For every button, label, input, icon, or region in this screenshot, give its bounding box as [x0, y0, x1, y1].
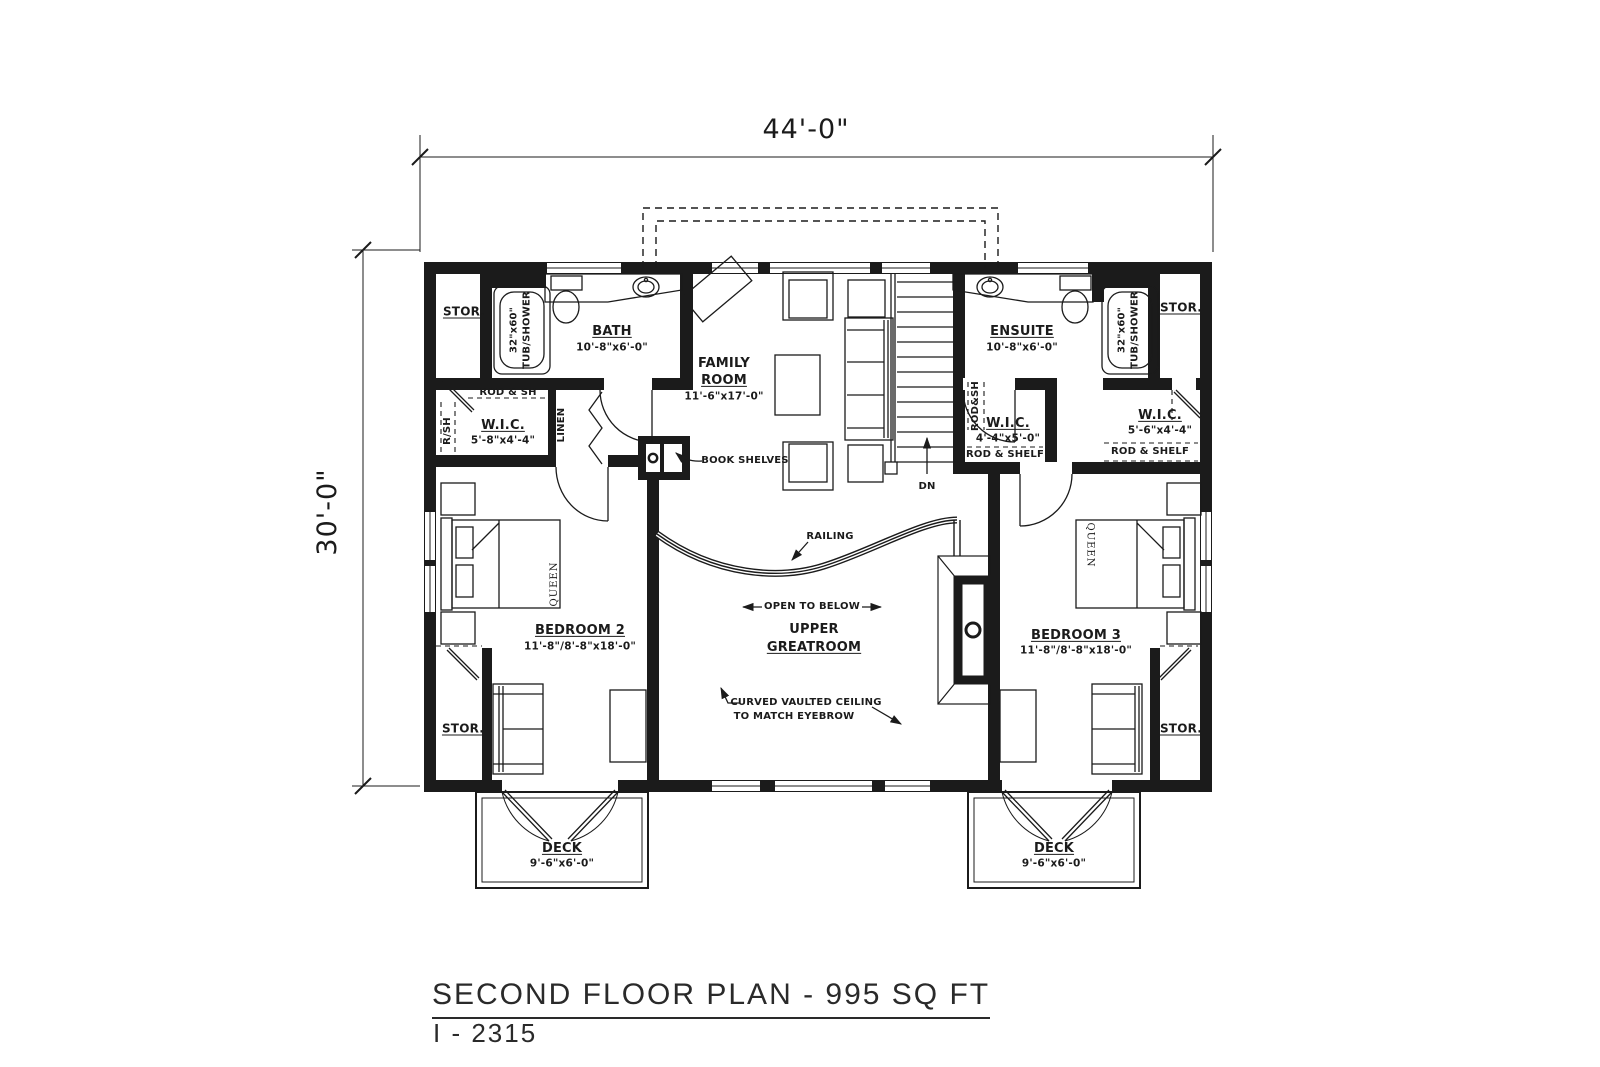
label-wic-right-size: 5'-6"x4'-4": [1128, 424, 1192, 437]
label-deck-left-size: 9'-6"x6'-0": [530, 857, 594, 870]
label-wic-center: W.I.C.: [986, 416, 1030, 432]
label-wic-left-size: 5'-8"x4'-4": [471, 434, 535, 447]
label-r-sh: R/SH: [442, 417, 455, 445]
tub-type: TUB/SHOWER: [1129, 291, 1140, 369]
label-stor-top-right: STOR.: [1160, 301, 1202, 316]
loveseat-right: [1092, 684, 1142, 774]
armchair-top: [783, 272, 833, 320]
label-bedroom2: BEDROOM 2: [535, 623, 625, 639]
book-shelves-leader: [676, 453, 702, 461]
nightstand-r-top: [1167, 483, 1201, 515]
label-bedroom3: BEDROOM 3: [1031, 628, 1121, 644]
label-railing: RAILING: [806, 531, 853, 544]
media-console: [682, 256, 752, 322]
label-deck-right: DECK: [1034, 841, 1074, 857]
eyebrow-outline: [643, 208, 998, 268]
label-ensuite: ENSUITE: [990, 324, 1054, 340]
label-open-to-below: OPEN TO BELOW: [764, 601, 860, 614]
label-stor-bottom-left: STOR.: [442, 722, 484, 737]
label-book-shelves: BOOK SHELVES: [701, 455, 788, 468]
label-linen: LINEN: [556, 408, 569, 443]
plan-linework: [0, 0, 1600, 1067]
label-bedroom2-size: 11'-8"/8'-8"x18'-0": [524, 640, 636, 653]
stairs: [885, 274, 953, 474]
bath-vanity: [545, 274, 682, 302]
nightstand-r-bottom: [1167, 612, 1201, 644]
door-stor-br: [1159, 648, 1191, 680]
door-stor-bl: [447, 648, 479, 680]
label-rod-shelf-right: ROD & SHELF: [1111, 446, 1189, 459]
bath-toilet: [551, 276, 582, 323]
label-stor-bottom-right: STOR.: [1160, 722, 1202, 737]
fireplace: [938, 556, 990, 704]
plan-number: I - 2315: [433, 1018, 537, 1049]
label-ensuite-size: 10'-8"x6'-0": [986, 341, 1058, 354]
railing-leader: [792, 542, 808, 560]
label-wic-left: W.I.C.: [481, 418, 525, 434]
label-family-size: 11'-6"x17'-0": [684, 390, 763, 403]
label-tub-left: 32"x60" TUB/SHOWER: [509, 291, 534, 369]
railing-curve: [657, 520, 960, 573]
side-table-bottom: [848, 445, 883, 482]
coffee-table: [775, 355, 820, 415]
label-rodsh-center: ROD&SH: [970, 381, 983, 431]
label-wic-center-size: 4'-4"x5'-0": [976, 432, 1040, 445]
label-deck-left: DECK: [542, 841, 582, 857]
loveseat-left: [493, 684, 543, 774]
door-bath: [600, 390, 652, 442]
dim-overall-depth: 30'-0": [311, 468, 345, 555]
dresser-right: [1000, 690, 1036, 762]
sofa: [845, 318, 893, 440]
label-family-line1: FAMILY: [698, 356, 750, 372]
dresser-left: [610, 690, 646, 762]
label-bath-size: 10'-8"x6'-0": [576, 341, 648, 354]
bed-left: [441, 518, 560, 610]
nightstand-l-top: [441, 483, 475, 515]
linen-bifold: [589, 392, 602, 464]
label-deck-right-size: 9'-6"x6'-0": [1022, 857, 1086, 870]
label-tub-right: 32"x60" TUB/SHOWER: [1117, 291, 1142, 369]
label-queen-left: QUEEN: [549, 562, 562, 607]
side-table-top: [848, 280, 885, 317]
ensuite-vanity: [953, 274, 1093, 302]
label-bath: BATH: [592, 324, 632, 340]
dim-overall-width: 44'-0": [762, 113, 849, 147]
label-queen-right: QUEEN: [1083, 523, 1096, 568]
door-bedroom3: [1020, 474, 1072, 526]
label-bedroom3-size: 11'-8"/8'-8"x18'-0": [1020, 644, 1132, 657]
label-dn: DN: [918, 481, 935, 494]
door-stor-tl: [442, 380, 474, 412]
book-shelves-pin: [649, 454, 657, 462]
ceiling-arrow-right: [872, 707, 901, 724]
label-stor-top-left: STOR.: [443, 305, 485, 320]
label-rod-and-sh: ROD & SH: [479, 387, 536, 400]
label-greatroom-line1: UPPER: [789, 622, 839, 638]
armchair-bottom: [783, 442, 833, 490]
door-bedroom2: [556, 467, 608, 521]
label-ceiling-note-2: TO MATCH EYEBROW: [734, 711, 855, 724]
label-wic-right: W.I.C.: [1138, 408, 1182, 424]
ensuite-toilet: [1060, 276, 1091, 323]
label-rod-shelf-center: ROD & SHELF: [966, 449, 1044, 462]
tub-size: 32"x60": [1117, 307, 1128, 353]
tub-type: TUB/SHOWER: [521, 291, 532, 369]
label-family-line2: ROOM: [701, 373, 747, 389]
tub-size: 32"x60": [509, 307, 520, 353]
floor-plan-sheet: 44'-0" 30'-0" STOR. STOR. STOR. STOR. 32…: [0, 0, 1600, 1067]
label-greatroom-line2: GREATROOM: [767, 640, 861, 656]
label-ceiling-note-1: CURVED VAULTED CEILING: [730, 697, 881, 710]
sheet-title: SECOND FLOOR PLAN - 995 SQ FT: [432, 978, 990, 1019]
nightstand-l-bottom: [441, 612, 475, 644]
